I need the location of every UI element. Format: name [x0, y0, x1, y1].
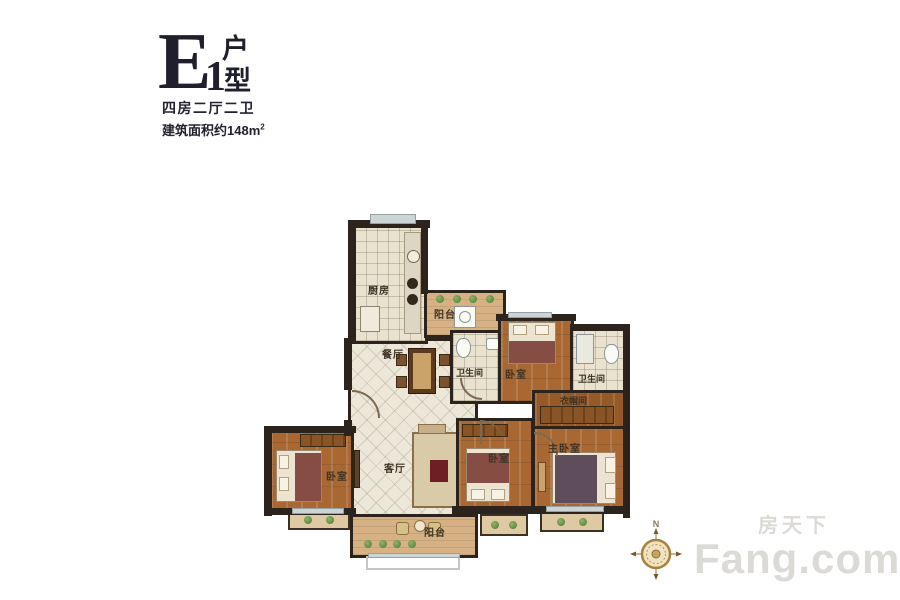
pillow-icon: [513, 325, 527, 335]
northeast-bedroom-label: 卧室: [505, 366, 527, 381]
bedroom-window: [292, 508, 344, 514]
coffee-table-icon: [430, 460, 448, 482]
main-balcony-label: 阳台: [424, 524, 446, 539]
plant-icon: [453, 295, 461, 303]
kitchen-sink-icon: [407, 250, 420, 263]
balcony-window: [368, 553, 460, 558]
main-balcony-room: [350, 514, 478, 558]
watermark: 房天下 Fang.com: [694, 516, 896, 580]
bed: [508, 322, 556, 364]
wall-segment: [264, 426, 356, 433]
area-text: 建筑面积约148m2: [162, 120, 265, 139]
dining-chair: [439, 376, 450, 388]
compass-north-label: N: [630, 520, 682, 528]
balcony-plants: [428, 294, 502, 304]
plant-icon: [393, 540, 401, 548]
dining-label: 餐厅: [382, 346, 404, 361]
watermark-brand: Fang.com: [694, 538, 896, 580]
fridge: [360, 306, 380, 332]
toilet-icon: [604, 344, 619, 364]
unit-suffix-top: 户: [222, 36, 249, 63]
shower: [576, 334, 594, 364]
middle-bedroom-label: 卧室: [488, 450, 510, 465]
master-bedroom-label: 主卧室: [548, 440, 581, 455]
blanket: [555, 455, 597, 503]
unit-letter: E: [158, 22, 211, 102]
living-label: 客厅: [384, 460, 406, 475]
wall-segment: [623, 324, 630, 518]
balcony-chair: [396, 522, 409, 535]
dining-chair: [439, 354, 450, 366]
unit-suffix-bottom: 型: [224, 68, 251, 95]
plant-icon: [304, 516, 312, 524]
flower-ledge: [480, 514, 528, 536]
plant-icon: [491, 521, 499, 529]
bedroom-window: [546, 506, 604, 512]
center-bath-label: 卫生间: [456, 366, 483, 379]
wardrobe-icon: [300, 434, 346, 447]
bed: [552, 452, 616, 504]
plant-icon: [557, 518, 565, 526]
armchair: [418, 424, 446, 434]
closet-label: 衣帽间: [560, 394, 587, 407]
wardrobe-icon: [540, 406, 614, 424]
stove-icon: [407, 294, 418, 305]
east-bath-label: 卫生间: [578, 372, 605, 385]
floorplan-page: E 1 户 型 四房二厅二卫 建筑面积约148m2: [0, 0, 900, 600]
service-balcony-label: 阳台: [434, 306, 456, 321]
wall-segment: [570, 324, 630, 331]
plant-icon: [469, 295, 477, 303]
wall-segment: [344, 420, 352, 436]
pillow-icon: [491, 489, 505, 500]
compass: N: [630, 520, 682, 580]
plant-icon: [408, 540, 416, 548]
wall-segment: [264, 426, 272, 516]
pillow-icon: [535, 325, 549, 335]
flower-ledge: [540, 512, 604, 532]
bedroom-window: [508, 312, 552, 318]
layout-summary: 四房二厅二卫: [162, 98, 255, 118]
kitchen-label: 厨房: [368, 282, 390, 297]
plant-icon: [486, 295, 494, 303]
stove-icon: [407, 278, 418, 289]
tv-cabinet: [354, 450, 360, 488]
blanket: [509, 341, 555, 363]
bedroom-bench: [538, 462, 546, 492]
kitchen-window: [370, 214, 416, 224]
pillow-icon: [279, 477, 289, 491]
plant-icon: [436, 295, 444, 303]
watermark-cn: 房天下: [758, 516, 896, 536]
wall-segment: [421, 228, 428, 294]
balcony-plants: [358, 538, 422, 550]
pillow-icon: [605, 457, 616, 473]
washing-machine-icon: [454, 306, 476, 328]
compass-rose-icon: [630, 528, 682, 580]
wall-segment: [348, 220, 356, 344]
plant-icon: [509, 521, 517, 529]
wall-segment: [344, 338, 352, 390]
area-superscript: 2: [260, 123, 264, 132]
dining-chair: [396, 376, 407, 388]
west-bedroom-label: 卧室: [326, 468, 348, 483]
plant-icon: [579, 518, 587, 526]
plant-icon: [379, 540, 387, 548]
dining-table: [408, 348, 436, 394]
pillow-icon: [279, 455, 289, 469]
balcony-bay-outline: [366, 556, 460, 570]
plant-icon: [326, 516, 334, 524]
toilet-icon: [456, 338, 471, 358]
pillow-icon: [471, 489, 485, 500]
area-value: 建筑面积约148m: [162, 123, 260, 138]
pillow-icon: [605, 483, 616, 499]
dining-table-top: [413, 353, 431, 389]
plant-icon: [364, 540, 372, 548]
